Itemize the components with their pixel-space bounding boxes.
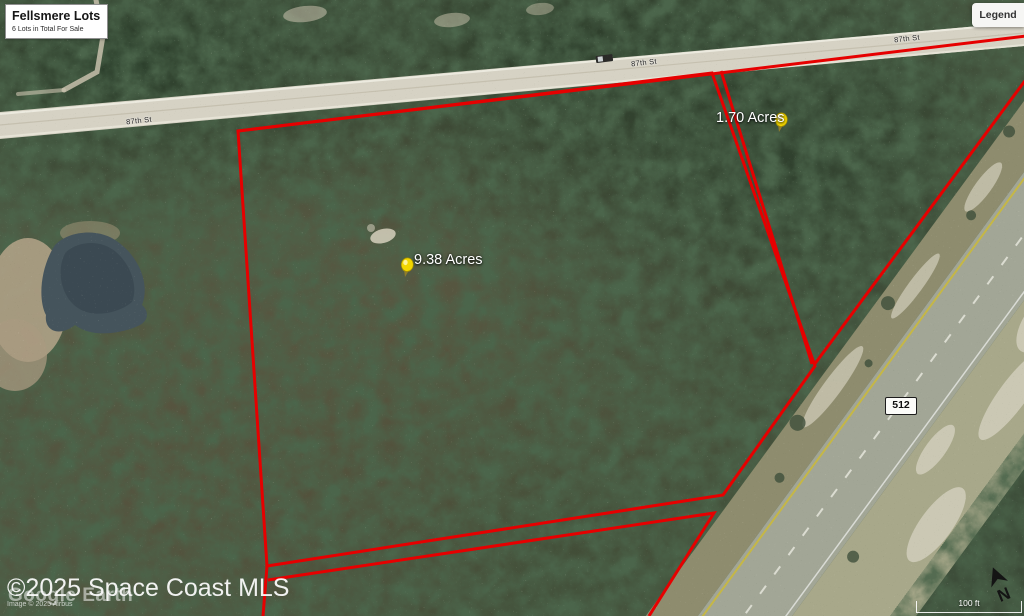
boundary-south-strip [268, 513, 714, 616]
compass-n-label: N [995, 584, 1014, 606]
acreage-label-938: 9.38 Acres [414, 252, 483, 268]
imagery-attribution: Image © 2025 Airbus [7, 601, 72, 608]
listing-title-box: Fellsmere Lots 6 Lots in Total For Sale [5, 4, 108, 39]
pushpin-lot-938[interactable] [400, 257, 414, 277]
legend-button[interactable]: Legend [972, 3, 1024, 27]
satellite-map[interactable]: 87th St 87th St 87th St 512 9.38 Acres 1… [0, 0, 1024, 616]
listing-subtitle: 6 Lots in Total For Sale [12, 26, 100, 33]
mls-copyright: ©2025 Space Coast MLS [7, 574, 289, 603]
boundary-lot-170-east [814, 74, 1024, 365]
boundary-lot-938 [238, 73, 815, 566]
listing-title: Fellsmere Lots [12, 9, 100, 23]
acreage-label-170: 1.70 Acres [716, 110, 785, 126]
parcel-boundary-layer [0, 0, 1024, 616]
